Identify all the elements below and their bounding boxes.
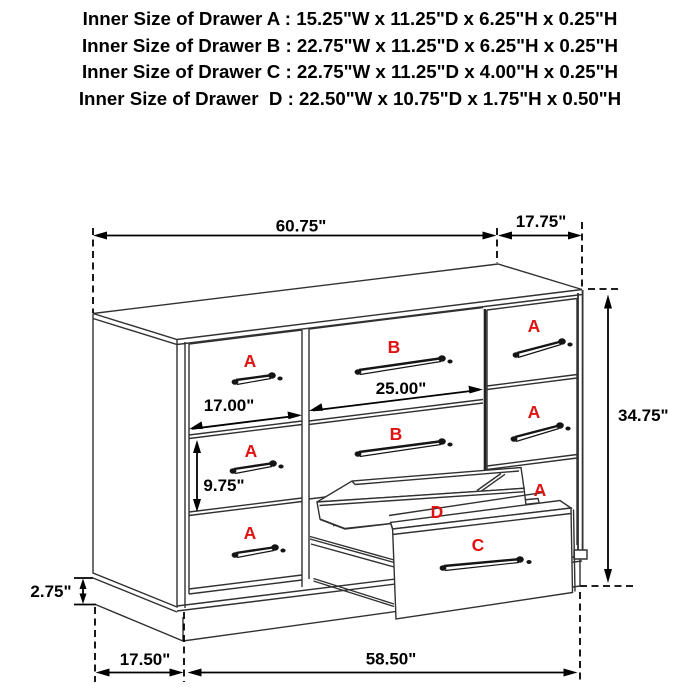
svg-text:C: C — [472, 535, 485, 555]
svg-text:A: A — [245, 441, 258, 461]
svg-text:17.75": 17.75" — [516, 212, 567, 231]
svg-text:25.00": 25.00" — [376, 379, 427, 398]
svg-text:60.75": 60.75" — [276, 217, 327, 236]
svg-text:2.75": 2.75" — [30, 582, 71, 601]
svg-text:A: A — [534, 480, 547, 500]
svg-text:A: A — [244, 523, 257, 543]
svg-text:17.00": 17.00" — [204, 396, 255, 415]
svg-text:58.50": 58.50" — [366, 650, 417, 669]
svg-text:A: A — [528, 316, 541, 336]
svg-text:A: A — [244, 351, 257, 371]
svg-text:B: B — [390, 424, 403, 444]
svg-text:D: D — [431, 502, 444, 522]
svg-text:A: A — [528, 402, 541, 422]
svg-text:17.50": 17.50" — [120, 650, 171, 669]
svg-text:34.75": 34.75" — [618, 406, 669, 425]
svg-text:9.75": 9.75" — [203, 476, 244, 495]
svg-text:B: B — [388, 337, 401, 357]
